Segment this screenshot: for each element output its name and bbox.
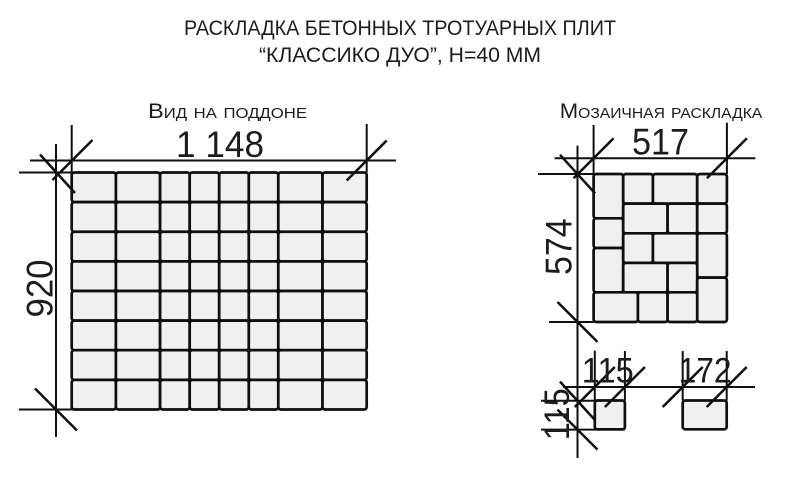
svg-text:172: 172	[679, 352, 732, 391]
svg-text:574: 574	[539, 218, 580, 275]
svg-text:РАСКЛАДКА БЕТОННЫХ ТРОТУАРНЫХ: РАСКЛАДКА БЕТОННЫХ ТРОТУАРНЫХ ПЛИТ	[184, 17, 616, 40]
svg-text:920: 920	[19, 260, 60, 318]
svg-text:Мозаичная раскладка: Мозаичная раскладка	[560, 100, 763, 123]
svg-text:115: 115	[538, 388, 577, 440]
svg-text:Вид на поддоне: Вид на поддоне	[148, 100, 307, 123]
svg-text:115: 115	[582, 352, 634, 391]
svg-text:“КЛАССИКО ДУО”, Н=40 ММ: “КЛАССИКО ДУО”, Н=40 ММ	[259, 44, 541, 67]
svg-text:1 148: 1 148	[176, 124, 264, 165]
svg-text:517: 517	[632, 122, 689, 163]
